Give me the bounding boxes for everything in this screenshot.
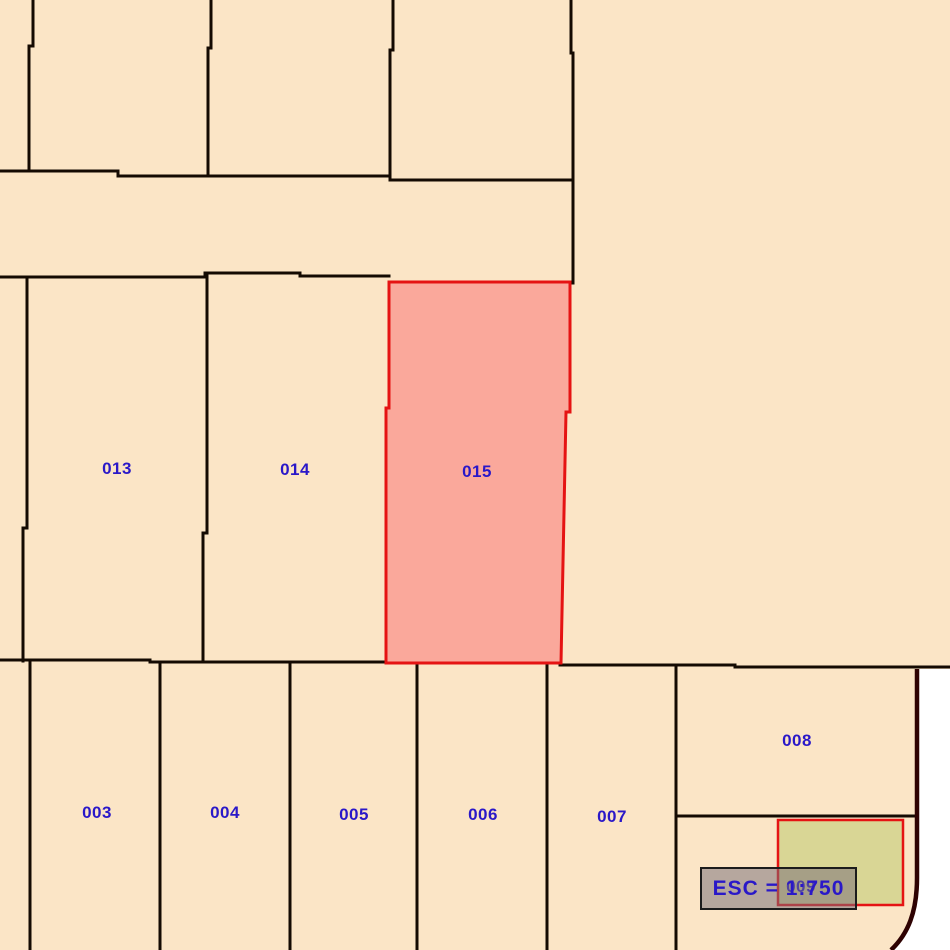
map-linework bbox=[0, 0, 950, 950]
parcel-009-shape[interactable] bbox=[778, 820, 903, 905]
parcel-015-shape[interactable] bbox=[386, 282, 570, 663]
cadastral-map-canvas[interactable]: 003 004 005 006 007 008 009 013 014 015 … bbox=[0, 0, 950, 950]
